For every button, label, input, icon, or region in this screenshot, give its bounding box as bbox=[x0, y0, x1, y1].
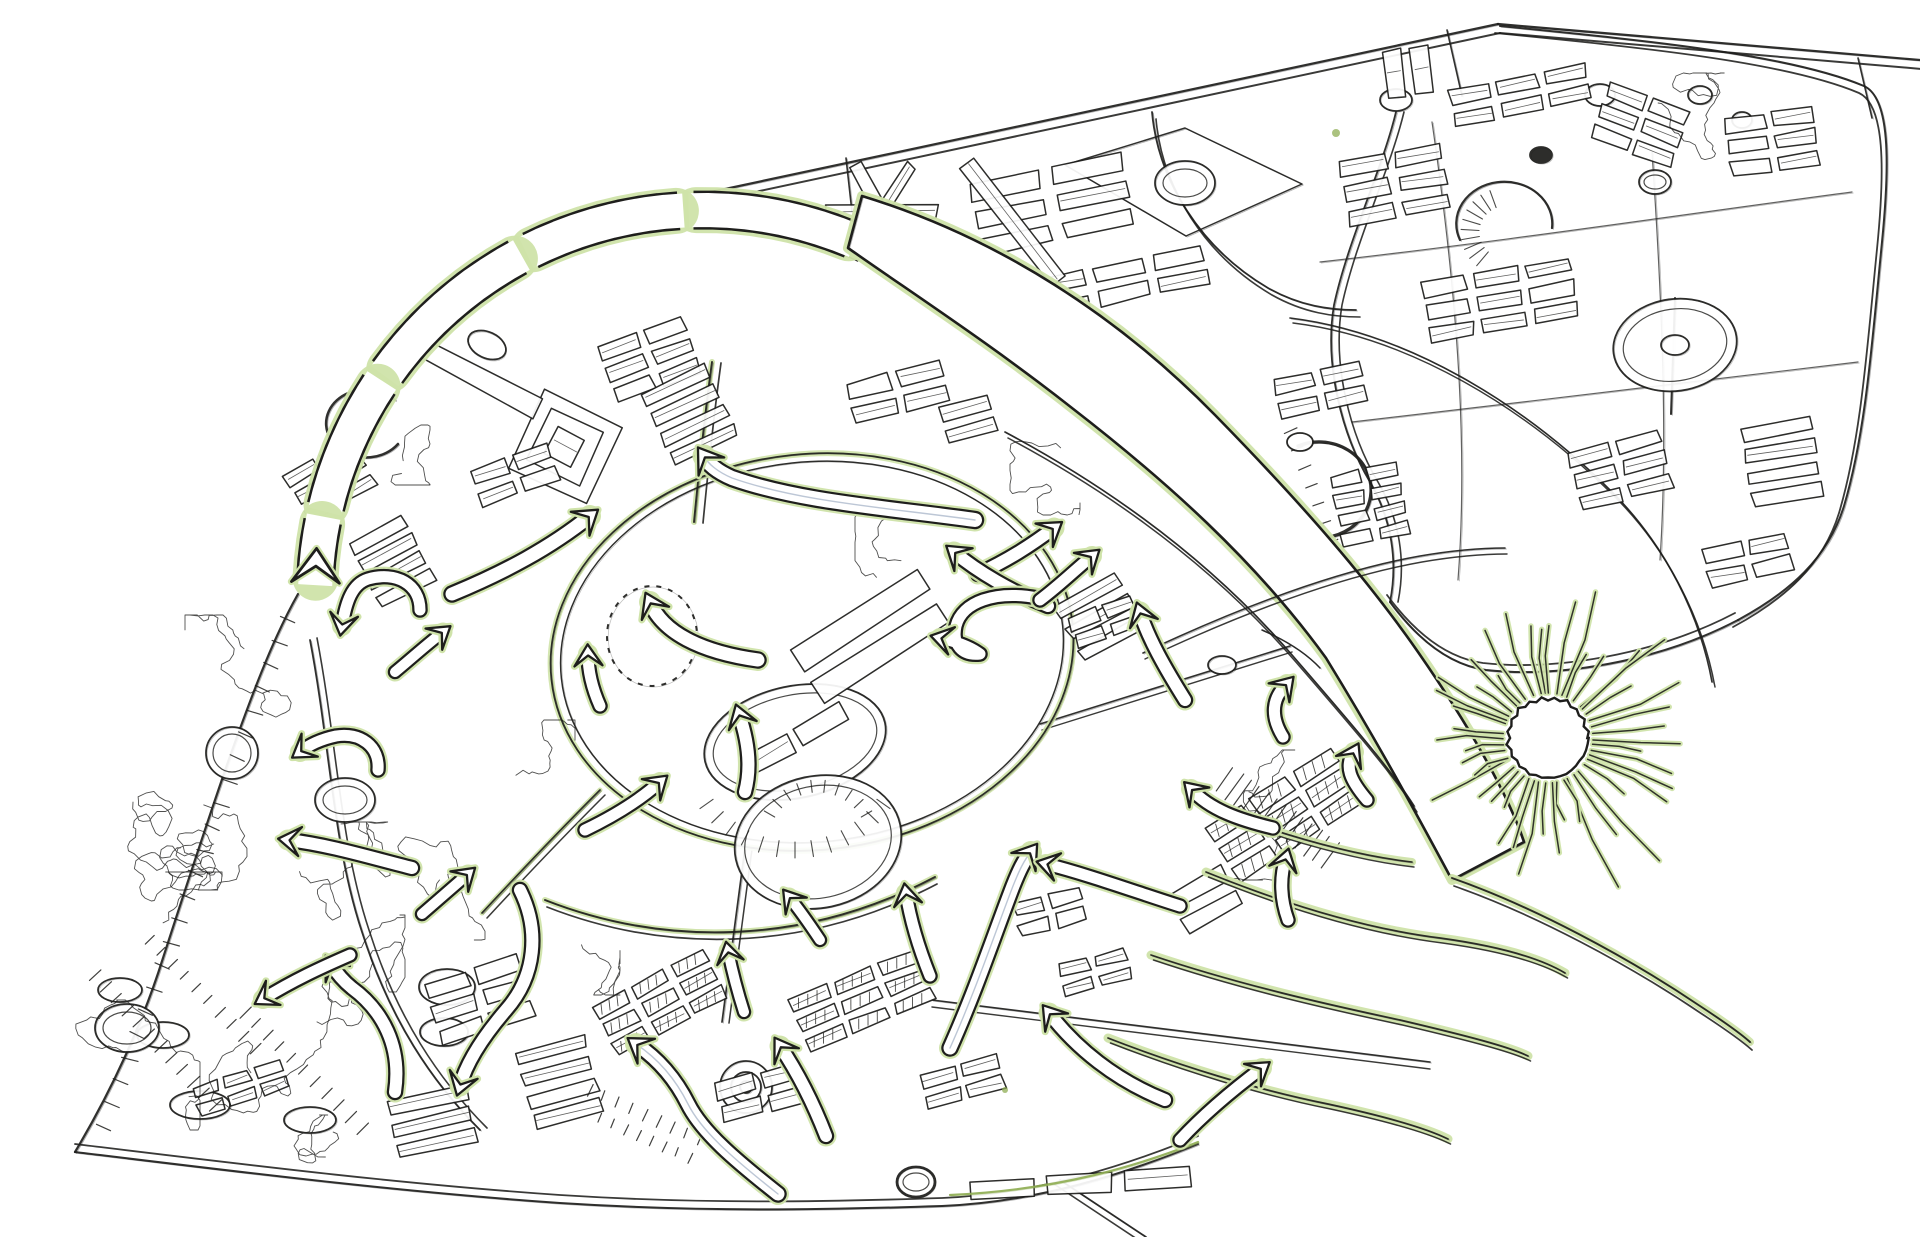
sun-core bbox=[1507, 697, 1589, 777]
arrow-shaft bbox=[1282, 858, 1288, 920]
masterplan-circulation-diagram bbox=[0, 0, 1920, 1237]
band-station-oval bbox=[1287, 433, 1313, 451]
green-accent-dot bbox=[1002, 1087, 1008, 1093]
spoke-wheel-hub bbox=[1661, 335, 1690, 356]
avenue-oval bbox=[1208, 656, 1237, 675]
dark-dot-building bbox=[1530, 147, 1553, 164]
green-accent-dot bbox=[1332, 129, 1340, 137]
diagram-canvas bbox=[0, 0, 1920, 1237]
roundabout-bottom bbox=[897, 1167, 936, 1198]
